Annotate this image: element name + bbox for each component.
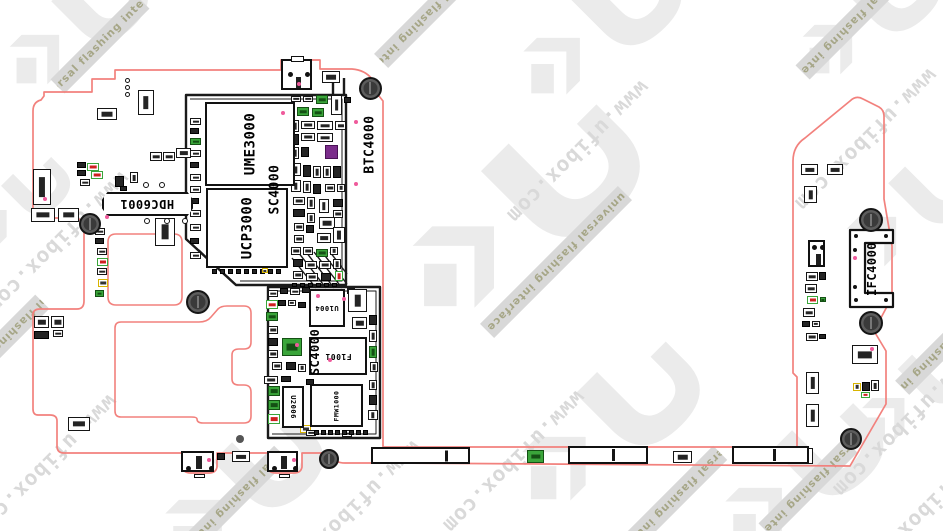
- screw-hole: [79, 213, 101, 235]
- pad-body: [192, 226, 198, 229]
- screw-slit: [850, 433, 852, 445]
- component-pad: [232, 451, 250, 462]
- connector-pin-mark: [445, 450, 448, 461]
- pin1-marker: [870, 347, 874, 351]
- component-pad: [266, 312, 278, 321]
- component-pad: [319, 261, 331, 269]
- connector: [267, 451, 298, 472]
- component-IFC4000: IFC4000: [862, 236, 882, 302]
- component-pad: [305, 261, 317, 269]
- pad-body: [810, 377, 814, 389]
- component-pad: [321, 430, 326, 435]
- screw-slit: [870, 214, 872, 227]
- component-pad: [212, 269, 217, 274]
- pad-body: [82, 181, 88, 184]
- screw-hole: [319, 449, 339, 469]
- pad-body: [192, 212, 198, 215]
- chip-label: U2006: [289, 395, 297, 419]
- pad-body: [102, 112, 113, 117]
- pad-body: [270, 328, 276, 331]
- component-pad: [333, 227, 345, 243]
- component-pad: [190, 238, 199, 244]
- screw-hole: [359, 77, 382, 100]
- screw-slit: [328, 454, 330, 464]
- component-pad: [294, 223, 304, 231]
- pad-body: [809, 335, 816, 338]
- component-pad: [53, 330, 63, 337]
- pad-body: [856, 385, 859, 389]
- component-pad: [853, 383, 861, 391]
- component-pad: [369, 395, 377, 405]
- pin-circle: [125, 92, 130, 97]
- pin-circle: [125, 78, 130, 83]
- component-pad: [98, 279, 108, 287]
- pad-body: [337, 124, 343, 127]
- component-pad: [325, 184, 335, 192]
- connector-pin-mark: [773, 449, 776, 461]
- pad-body: [319, 98, 326, 101]
- pad-body: [90, 165, 97, 168]
- connector-tab: [279, 474, 290, 478]
- pad-body: [340, 186, 343, 190]
- component-pad: [236, 269, 241, 274]
- component-pad: [95, 238, 104, 244]
- pad-body: [97, 292, 102, 295]
- component-pad: [527, 450, 544, 463]
- component-pad: [190, 128, 199, 134]
- connector: [181, 451, 214, 472]
- component-pad: [331, 95, 342, 115]
- component-pad: [335, 121, 346, 130]
- component-pad: [349, 430, 354, 435]
- component-pad: [317, 133, 333, 142]
- ifc-screw-dot: [884, 234, 888, 238]
- component-U1004: U1004: [309, 289, 345, 327]
- chip-label: UCP3000: [239, 197, 255, 260]
- pad-body: [192, 140, 198, 143]
- component-FMW1000: FMW1000: [310, 384, 363, 427]
- component-pad: [804, 186, 817, 203]
- component-SC4000: SC4000: [303, 325, 327, 379]
- component-pad: [321, 273, 331, 281]
- pad-body: [290, 302, 294, 304]
- component-pad: [301, 133, 315, 141]
- component-pad: [130, 172, 138, 183]
- component-pad: [807, 296, 818, 304]
- pad-body: [333, 249, 336, 253]
- pad-body: [263, 270, 266, 272]
- pad-body: [805, 167, 814, 171]
- component-pad: [268, 400, 280, 410]
- component-pad: [217, 453, 225, 460]
- component-pad: [325, 145, 338, 159]
- component-pad: [300, 283, 305, 287]
- component-pad: [268, 338, 278, 346]
- pad-body: [162, 224, 169, 239]
- pin1-marker: [281, 111, 285, 115]
- chip-label: IFC4000: [865, 242, 879, 296]
- pad-body: [179, 151, 187, 155]
- connector-label-mark: [816, 254, 821, 265]
- component-pad: [806, 333, 818, 341]
- pad-body: [296, 237, 302, 240]
- pad-body: [336, 261, 339, 267]
- ifc-screw-dot: [884, 298, 888, 302]
- component-pad: [852, 345, 878, 364]
- component-pad: [333, 259, 341, 269]
- component-pad: [316, 283, 321, 287]
- component-pad: [280, 288, 288, 294]
- component-pad: [803, 308, 815, 317]
- screw-slit: [369, 82, 371, 94]
- screw-slit: [870, 317, 872, 330]
- component-pad: [316, 249, 328, 257]
- component-pad: [324, 283, 329, 287]
- pad-body: [306, 184, 309, 191]
- connector-label-mark: [196, 456, 202, 469]
- pad-body: [323, 221, 332, 226]
- pad-body: [153, 155, 160, 158]
- component-pad: [330, 247, 338, 255]
- pad-body: [814, 323, 818, 325]
- component-pad: [290, 288, 300, 295]
- component-pad: [805, 284, 817, 293]
- pad-body: [300, 110, 307, 113]
- pad-body: [192, 152, 198, 155]
- pad-body: [133, 174, 136, 180]
- component-pad: [323, 166, 331, 178]
- chip-label: BTC4000: [363, 115, 378, 173]
- component-pad: [806, 272, 818, 281]
- pad-body: [304, 135, 312, 138]
- chip-label: SC4000: [308, 329, 322, 375]
- component-pad: [68, 417, 90, 431]
- component-pad: [268, 326, 278, 334]
- component-BTC4000: BTC4000: [351, 100, 390, 189]
- component-pad: [268, 386, 280, 396]
- component-pad: [268, 290, 278, 297]
- connector-screw-dot: [288, 72, 293, 77]
- component-pad: [33, 169, 51, 205]
- component-pad: [332, 283, 337, 287]
- component-pad: [120, 186, 127, 191]
- edge-connector: [568, 446, 648, 464]
- chip-label: U1004: [315, 304, 339, 312]
- component-pad: [363, 430, 368, 435]
- component-pad: [369, 380, 377, 390]
- pad-body: [810, 409, 814, 422]
- connector-tab: [194, 474, 205, 478]
- pin-circle: [144, 218, 150, 224]
- screw-slit: [89, 218, 91, 230]
- component-pad: [297, 107, 309, 116]
- component-pad: [51, 316, 64, 328]
- component-pad: [293, 209, 305, 217]
- component-pad: [333, 166, 341, 178]
- component-pad: [303, 181, 311, 193]
- pad-body: [192, 176, 198, 179]
- pad-body: [267, 378, 275, 381]
- pad-body: [308, 263, 315, 266]
- pad-body: [305, 249, 311, 252]
- components-layer: UME3000UCP3000SC4000BTC4000HDC6001IFC400…: [0, 0, 943, 531]
- pad-body: [373, 364, 376, 370]
- pad-body: [37, 320, 45, 325]
- component-pad: [322, 71, 340, 83]
- component-pad: [268, 414, 280, 424]
- component-pad: [176, 148, 191, 158]
- pad-body: [354, 294, 360, 307]
- component-pad: [319, 199, 329, 213]
- component-pad: [150, 152, 162, 161]
- component-pad: [819, 272, 826, 280]
- pad-body: [63, 212, 75, 217]
- pad-body: [372, 349, 375, 356]
- component-pad: [97, 108, 117, 120]
- pad-body: [192, 188, 198, 191]
- component-pad: [292, 283, 297, 287]
- pad-body: [270, 352, 276, 355]
- pad-body: [55, 332, 61, 335]
- pad-body: [305, 98, 311, 100]
- component-pad: [335, 430, 340, 435]
- component-pad: [862, 382, 870, 391]
- component-pad: [344, 97, 351, 103]
- pin-circle: [159, 182, 165, 188]
- pad-body: [310, 215, 313, 221]
- pad-body: [321, 124, 330, 127]
- pad-body: [372, 333, 375, 340]
- component-pad: [190, 162, 199, 168]
- component-pad: [303, 165, 311, 177]
- ifc-screw-dot: [854, 234, 858, 238]
- component-pad: [138, 90, 154, 115]
- pin1-marker: [105, 215, 109, 219]
- pin-circle: [143, 182, 149, 188]
- connector-screw-dot: [209, 466, 214, 471]
- component-pad: [268, 350, 278, 358]
- component-pad: [306, 225, 314, 233]
- pin-circle: [164, 218, 170, 224]
- component-pad: [337, 184, 345, 192]
- component-pad: [333, 199, 343, 207]
- component-pad: [307, 197, 315, 209]
- connector-screw-dot: [305, 72, 310, 77]
- component-pad: [190, 174, 201, 181]
- component-pad: [673, 451, 692, 463]
- pad-body: [269, 303, 276, 306]
- screw-hole: [859, 208, 883, 232]
- connector: [281, 59, 312, 90]
- component-U2006: U2006: [282, 386, 304, 428]
- component-pad: [369, 330, 377, 342]
- pad-body: [296, 199, 303, 202]
- component-pad: [34, 331, 49, 339]
- pad-body: [99, 260, 105, 263]
- chip-label: UME3000: [242, 113, 258, 176]
- component-pad: [306, 273, 318, 281]
- pad-body: [326, 169, 329, 176]
- pin1-marker: [43, 197, 47, 201]
- component-pad: [58, 208, 79, 222]
- pad-body: [292, 290, 298, 293]
- pad-body: [143, 96, 148, 110]
- pad-body: [304, 123, 312, 126]
- pad-body: [677, 455, 687, 460]
- pin1-marker: [207, 458, 211, 462]
- pad-body: [322, 263, 329, 266]
- pin1-marker: [297, 82, 301, 86]
- component-pad: [308, 283, 313, 287]
- component-pad: [368, 410, 378, 420]
- pad-body: [531, 454, 540, 459]
- screw-slit: [197, 296, 199, 309]
- pin1-marker: [328, 358, 332, 362]
- component-pad: [342, 430, 347, 435]
- pad-body: [269, 315, 276, 318]
- pin1-marker: [295, 343, 299, 347]
- screw-hole: [840, 428, 862, 450]
- ifc-screw-dot: [853, 285, 857, 289]
- component-pad: [313, 166, 321, 178]
- component-pad: [31, 208, 55, 222]
- component-HDC6001: HDC6001: [102, 192, 193, 216]
- connector-screw-dot: [272, 466, 277, 471]
- pad-body: [296, 225, 302, 228]
- component-pad: [228, 269, 233, 274]
- pad-body: [310, 200, 313, 207]
- pin1-marker: [316, 294, 320, 298]
- chip-label: SC4000: [268, 164, 283, 214]
- pad-body: [99, 250, 105, 253]
- component-pad: [97, 268, 107, 275]
- connector-label-mark: [281, 456, 287, 469]
- pad-body: [315, 111, 322, 114]
- component-pad: [298, 302, 306, 308]
- component-pad: [190, 224, 201, 231]
- component-pad: [34, 316, 49, 328]
- component-pad: [301, 147, 309, 157]
- component-pad: [95, 290, 104, 297]
- component-pad: [801, 164, 818, 175]
- component-pad: [262, 268, 268, 273]
- component-pad: [293, 271, 303, 279]
- component-pad: [190, 210, 201, 217]
- component-pad: [827, 164, 843, 175]
- component-pad: [266, 300, 278, 309]
- component-pad: [244, 269, 249, 274]
- component-pad: [871, 380, 879, 391]
- pin-circle: [182, 218, 188, 224]
- component-pad: [348, 289, 367, 312]
- component-pad: [77, 162, 86, 168]
- pin1-marker: [354, 120, 358, 124]
- component-pad: [77, 170, 86, 176]
- pad-body: [293, 98, 299, 100]
- component-pad: [313, 184, 321, 194]
- pad-body: [335, 100, 339, 111]
- pad-body: [863, 394, 868, 396]
- pad-body: [166, 155, 173, 158]
- ifc-screw-dot: [854, 298, 858, 302]
- pad-body: [94, 173, 101, 176]
- component-pad: [369, 315, 377, 325]
- connector-pin-mark: [612, 449, 615, 461]
- component-pad: [281, 376, 291, 382]
- component-pad: [220, 269, 225, 274]
- component-pad: [276, 269, 281, 274]
- chip-label: FMW1000: [333, 390, 341, 421]
- component-pad: [812, 321, 820, 327]
- pad-body: [809, 275, 816, 278]
- pad-body: [308, 432, 314, 434]
- pad-body: [39, 177, 45, 197]
- pad-body: [295, 273, 301, 276]
- pad-body: [36, 212, 49, 217]
- component-pad: [278, 300, 286, 306]
- component-pad: [97, 258, 108, 266]
- component-pad: [861, 392, 870, 398]
- pin1-marker: [354, 182, 358, 186]
- component-pad: [312, 108, 324, 117]
- pad-body: [99, 270, 105, 273]
- component-pad: [286, 362, 296, 370]
- component-pad: [301, 121, 315, 129]
- connector-screw-dot: [293, 466, 298, 471]
- connector: [808, 240, 825, 267]
- pad-body: [319, 251, 326, 254]
- component-pad: [328, 430, 333, 435]
- pad-body: [874, 382, 877, 388]
- component-pad: [272, 362, 282, 370]
- pad-body: [808, 287, 815, 290]
- component-pad: [87, 163, 99, 171]
- component-pad: [252, 269, 257, 274]
- pin1-marker: [342, 297, 346, 301]
- pad-body: [309, 275, 316, 278]
- pad-body: [270, 292, 276, 295]
- component-pad: [268, 269, 273, 274]
- component-pad: [352, 317, 367, 329]
- component-pad: [293, 259, 303, 267]
- component-pad: [820, 297, 826, 302]
- component-pad: [317, 233, 331, 243]
- component-pad: [370, 362, 378, 372]
- pad-body: [327, 186, 333, 189]
- pad-body: [100, 281, 106, 284]
- pad-body: [322, 202, 325, 210]
- component-pad: [819, 334, 826, 339]
- pad-body: [809, 298, 815, 301]
- pin1-marker: [853, 256, 857, 260]
- component-pad: [369, 346, 377, 358]
- component-pad: [317, 121, 333, 130]
- component-pad: [293, 197, 305, 205]
- pad-body: [192, 254, 198, 257]
- component-pad: [316, 95, 328, 104]
- pad-body: [337, 231, 341, 240]
- pad-body: [831, 167, 840, 171]
- pad-body: [355, 321, 363, 326]
- component-pad: [303, 247, 313, 255]
- pcb-layout-diagram: universal flashing interfaceuniversal fl…: [0, 0, 943, 531]
- pad-body: [821, 299, 824, 301]
- component-pad: [291, 247, 301, 255]
- chip-label: HDC6001: [120, 197, 174, 211]
- component-pad: [190, 150, 201, 157]
- edge-connector: [732, 446, 809, 464]
- component-pad: [356, 430, 361, 435]
